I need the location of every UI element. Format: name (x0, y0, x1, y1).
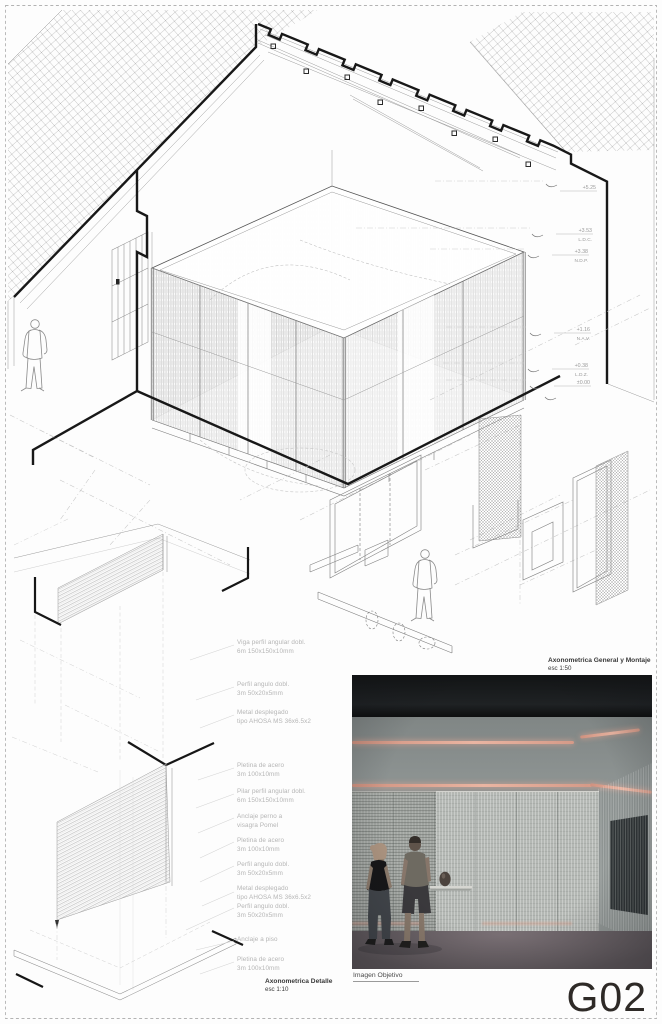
elevation-ref: N.D.P. (574, 258, 588, 264)
annotation-label: Metal desplegado tipo AHOSA MS 36x6.5x2 (237, 708, 345, 727)
elevation-ref: N.A.V. (577, 336, 590, 342)
photo-vignette (352, 675, 652, 969)
general-axon-title: Axonometrica General y Montaje (548, 657, 651, 664)
elevation-value: ±0.00 (577, 380, 590, 386)
elevation-ref: L.D.Z. (575, 372, 588, 378)
general-axon-label: Axonometrica General y Montaje esc 1:50 (548, 657, 651, 672)
elevation-value: +3.53 (579, 228, 592, 234)
detail-axon-label: Axonometrica Detalle esc 1:10 (265, 978, 332, 993)
detail-axon-scale: esc 1:10 (265, 986, 332, 993)
person-figure-montage (411, 550, 437, 621)
annotation-label: Anclaje a piso (237, 935, 345, 944)
detail-axon-ceiling (14, 518, 250, 765)
general-axon-scale: esc 1:50 (548, 665, 651, 672)
annotation-label: Metal desplegado tipo AHOSA MS 36x6.5x2 (237, 884, 345, 903)
annotation-label: Anclaje perno a visagra Pomel (237, 812, 345, 831)
elevation-ref: L.D.C. (578, 237, 592, 243)
annotation-leaders (186, 645, 234, 974)
elevation-value: +0.38 (575, 363, 588, 369)
annotation-label: Perfil angulo dobl. 3m 50x20x5mm (237, 902, 345, 921)
window-left (112, 232, 148, 360)
drawing-sheet: +5.25 +3.53 L.D.C. +3.38 N.D.P. +1.16 N.… (0, 0, 662, 1024)
photo-render (352, 675, 652, 969)
annotation-label: Pletina de acero 3m 100x10mm (237, 836, 345, 855)
photo-caption: Imagen Objetivo (353, 972, 419, 982)
annotation-label: Perfil angulo dobl. 3m 50x20x5mm (237, 680, 345, 699)
person-figure-left (21, 320, 47, 391)
annotation-label: Viga perfil angular dobl. 6m 150x150x10m… (237, 638, 345, 657)
annotation-label: Pilar perfil angular dobl. 6m 150x150x10… (237, 787, 345, 806)
annotation-label: Perfil angulo dobl. 3m 50x20x5mm (237, 860, 345, 879)
detail-axon-title: Axonometrica Detalle (265, 978, 332, 985)
elevation-value: +3.38 (575, 249, 588, 255)
elevation-value: +1.16 (577, 327, 590, 333)
elevation-value: +5.25 (583, 185, 596, 191)
sheet-number: G02 (567, 974, 648, 1021)
annotation-label: Pletina de acero 3m 100x10mm (237, 955, 345, 974)
mesh-pavilion (151, 186, 525, 496)
annotation-label: Pletina de acero 3m 100x10mm (237, 761, 345, 780)
